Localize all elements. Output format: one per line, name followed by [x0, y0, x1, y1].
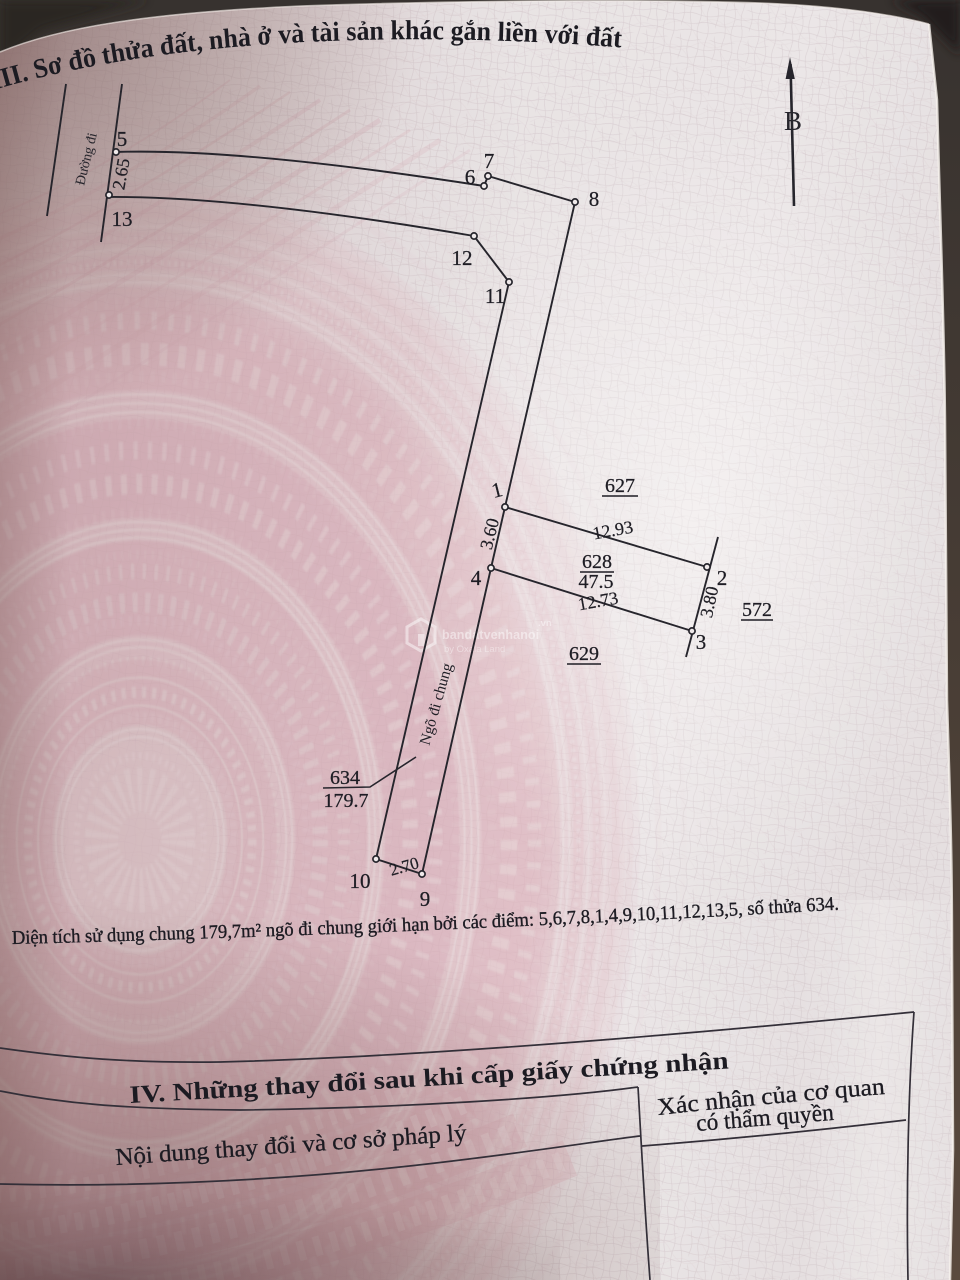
svg-text:47.5: 47.5	[579, 571, 614, 593]
svg-text:634: 634	[330, 767, 360, 789]
svg-text:B: B	[784, 106, 802, 136]
svg-text:.vn: .vn	[538, 618, 552, 629]
svg-text:9: 9	[420, 887, 431, 911]
svg-text:7: 7	[484, 149, 495, 173]
svg-text:627: 627	[605, 475, 635, 497]
svg-text:4: 4	[471, 566, 482, 590]
svg-text:by Oxala Land: by Oxala Land	[444, 644, 505, 655]
svg-text:628: 628	[582, 551, 612, 573]
svg-text:12: 12	[452, 246, 473, 270]
svg-text:179.7: 179.7	[324, 790, 369, 812]
svg-text:572: 572	[742, 599, 772, 621]
svg-text:bandatvenhanoi: bandatvenhanoi	[442, 628, 539, 642]
svg-text:629: 629	[569, 643, 599, 665]
svg-text:3: 3	[696, 630, 707, 654]
svg-text:2: 2	[717, 566, 728, 590]
svg-text:6: 6	[465, 165, 476, 189]
svg-text:13: 13	[112, 207, 133, 231]
svg-text:5: 5	[117, 127, 128, 151]
svg-text:11: 11	[485, 284, 505, 308]
svg-text:8: 8	[589, 187, 600, 211]
svg-text:10: 10	[350, 869, 371, 893]
